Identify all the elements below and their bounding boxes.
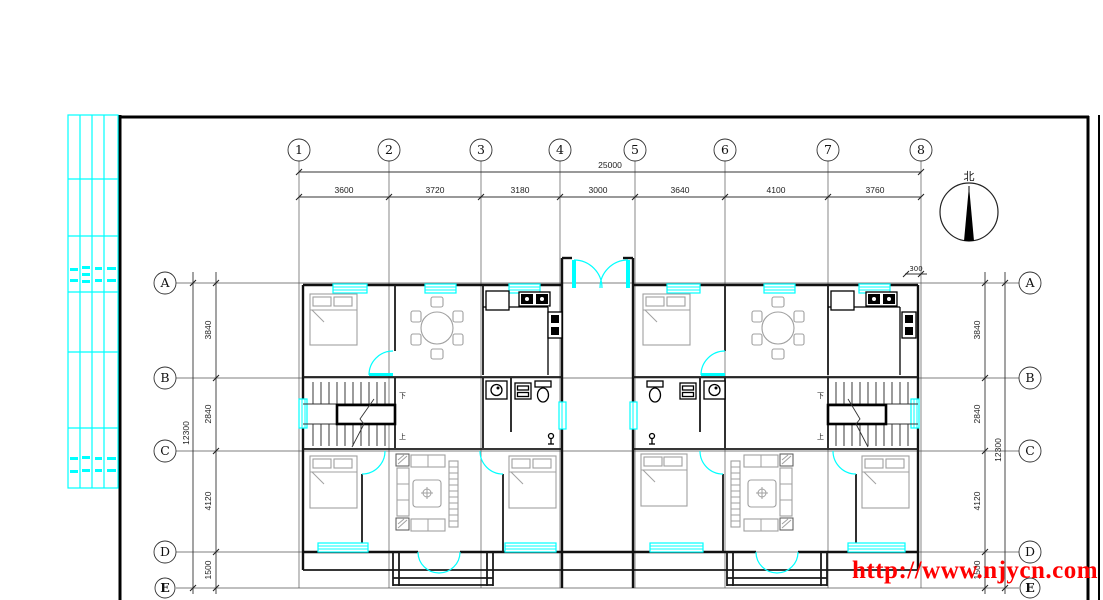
bed-lower-2 bbox=[509, 456, 556, 508]
grid-bubble-3: 3 bbox=[477, 142, 485, 157]
dim-entry-step: 300 bbox=[909, 265, 922, 273]
grid-bubble-2: 2 bbox=[385, 142, 393, 157]
window-bottom-bedroom3 bbox=[650, 543, 703, 552]
kitchen-right bbox=[828, 291, 916, 375]
sink-icon bbox=[831, 291, 854, 310]
dim-right-total: 12300 bbox=[993, 438, 1003, 462]
sink-icon bbox=[486, 291, 509, 310]
row-bubble-E-left: E bbox=[160, 580, 170, 595]
fridge-icon bbox=[902, 312, 916, 338]
balcony-right bbox=[727, 552, 827, 586]
stair-left-up-label: 上 bbox=[399, 432, 406, 441]
compass-north-label: 北 bbox=[964, 170, 975, 183]
balcony-left bbox=[393, 552, 493, 586]
bed-lower-4 bbox=[862, 456, 909, 508]
dim-seg-7: 3760 bbox=[866, 185, 885, 195]
door-bedroom2 bbox=[480, 451, 503, 474]
row-bubble-C-left: C bbox=[160, 443, 170, 458]
dining-table-right bbox=[752, 297, 804, 359]
stair-right-down-label: 下 bbox=[817, 392, 824, 400]
entry-step-dim: 300 bbox=[903, 265, 927, 277]
toilet-icon bbox=[647, 381, 663, 402]
grid-bubble-6: 6 bbox=[721, 142, 729, 157]
dim-total-width: 25000 bbox=[598, 160, 622, 170]
cabinet-icon bbox=[515, 383, 531, 399]
window-hall-left bbox=[559, 402, 566, 429]
shower-icon bbox=[649, 434, 655, 445]
window-hall-right bbox=[630, 402, 637, 429]
dim-right-BC: 2840 bbox=[972, 404, 982, 423]
cad-floor-plan-page: 1 2 3 4 5 6 7 8 25000 3600 3720 3180 300… bbox=[0, 0, 1103, 600]
row-bubble-B-left: B bbox=[160, 370, 169, 385]
row-bubble-A-left: A bbox=[159, 275, 170, 290]
watermark-url[interactable]: http://www.njycn.com bbox=[852, 557, 1098, 584]
grid-bubble-4: 4 bbox=[556, 142, 564, 157]
washing-machine-icon bbox=[486, 381, 507, 399]
entrance-double-door bbox=[572, 260, 630, 288]
grid-bubble-1: 1 bbox=[295, 142, 303, 157]
drawing-frame bbox=[119, 115, 1099, 600]
bed-lower-3 bbox=[641, 454, 687, 506]
dim-left-total: 12300 bbox=[181, 421, 191, 445]
dim-right-AB: 3840 bbox=[972, 320, 982, 339]
window-top-dining-right bbox=[764, 284, 795, 293]
row-bubble-C-right: C bbox=[1025, 443, 1035, 458]
dimension-left: A B C D E 3840 2840 4120 1500 12300 bbox=[154, 272, 219, 598]
bed-upper-right bbox=[643, 294, 690, 345]
window-top-bedroom-right bbox=[667, 284, 700, 293]
dimension-right: A B C D E 3840 2840 4120 1500 12300 bbox=[972, 272, 1041, 598]
dim-seg-2: 3720 bbox=[426, 185, 445, 195]
door-bedroom1 bbox=[362, 451, 385, 474]
dim-left-DE: 1500 bbox=[203, 560, 213, 579]
bed-lower-1 bbox=[310, 456, 357, 508]
bed-upper-left bbox=[310, 294, 357, 345]
tv-cabinet bbox=[731, 461, 740, 527]
stair-right: 下 上 bbox=[817, 382, 918, 447]
dim-right-CD: 4120 bbox=[972, 491, 982, 510]
title-block-table bbox=[68, 115, 118, 488]
washing-machine-icon bbox=[704, 381, 725, 399]
title-block-text-marks bbox=[70, 266, 116, 473]
dim-left-BC: 2840 bbox=[203, 404, 213, 423]
window-top-bedroom-left bbox=[333, 284, 367, 293]
grid-bubble-7: 7 bbox=[824, 142, 832, 157]
door-bedroom4 bbox=[833, 451, 856, 474]
dim-seg-5: 3640 bbox=[671, 185, 690, 195]
dim-seg-3: 3180 bbox=[511, 185, 530, 195]
dim-seg-6: 4100 bbox=[767, 185, 786, 195]
dim-seg-4: 3000 bbox=[589, 185, 608, 195]
sofa-right bbox=[731, 454, 793, 531]
stair-left: 下 上 bbox=[303, 382, 406, 447]
row-bubble-A-right: A bbox=[1024, 275, 1035, 290]
bathroom-right bbox=[647, 381, 725, 444]
door-bedroom-upper-left bbox=[369, 351, 393, 376]
window-top-dining-left bbox=[425, 284, 456, 293]
floor-plan-drawing: 1 2 3 4 5 6 7 8 25000 3600 3720 3180 300… bbox=[0, 0, 1103, 600]
window-bottom-bedroom2 bbox=[505, 543, 556, 552]
dimension-top: 25000 3600 3720 3180 3000 3640 4100 3760 bbox=[296, 160, 924, 200]
grid-bubbles-top: 1 2 3 4 5 6 7 8 bbox=[288, 139, 932, 161]
shower-icon bbox=[548, 434, 554, 445]
row-bubble-B-right: B bbox=[1025, 370, 1034, 385]
row-bubble-D-left: D bbox=[160, 544, 170, 559]
grid-bubble-5: 5 bbox=[631, 142, 639, 157]
tv-cabinet bbox=[449, 461, 458, 527]
window-bottom-bedroom4 bbox=[848, 543, 905, 552]
sofa-left bbox=[396, 454, 458, 531]
dim-seg-1: 3600 bbox=[335, 185, 354, 195]
dim-left-AB: 3840 bbox=[203, 320, 213, 339]
bathroom-left bbox=[486, 381, 554, 444]
north-compass: 北 bbox=[940, 170, 998, 241]
dining-table-left bbox=[411, 297, 463, 359]
window-bottom-bedroom1 bbox=[318, 543, 368, 552]
stair-left-down-label: 下 bbox=[399, 392, 406, 400]
kitchen-left bbox=[483, 291, 562, 375]
fridge-icon bbox=[548, 312, 562, 338]
toilet-icon bbox=[535, 381, 551, 402]
door-bedroom-upper-right bbox=[701, 351, 725, 376]
grid-bubble-8: 8 bbox=[917, 142, 925, 157]
dim-left-CD: 4120 bbox=[203, 491, 213, 510]
cabinet-icon bbox=[680, 383, 696, 399]
stair-right-up-label: 上 bbox=[817, 432, 824, 441]
door-bedroom3 bbox=[700, 451, 723, 474]
